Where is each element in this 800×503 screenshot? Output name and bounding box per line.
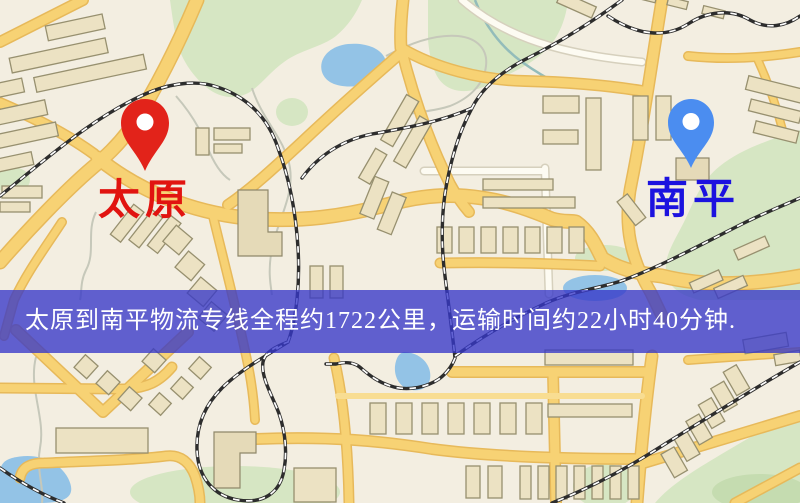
origin-city-label: 太原 bbox=[45, 180, 245, 222]
route-info-banner: 太原到南平物流专线全程约1722公里，运输时间约22小时40分钟. bbox=[0, 290, 800, 353]
map-canvas[interactable]: 太原 南平 太原到南平物流专线全程约1722公里，运输时间约22小时40分钟. bbox=[0, 0, 800, 503]
route-info-text: 太原到南平物流专线全程约1722公里，运输时间约22小时40分钟. bbox=[25, 308, 736, 334]
destination-city-label: 南平 bbox=[593, 179, 793, 221]
map-image[interactable] bbox=[0, 0, 800, 503]
origin-pin-hole bbox=[137, 114, 154, 131]
destination-pin-hole bbox=[683, 113, 700, 130]
